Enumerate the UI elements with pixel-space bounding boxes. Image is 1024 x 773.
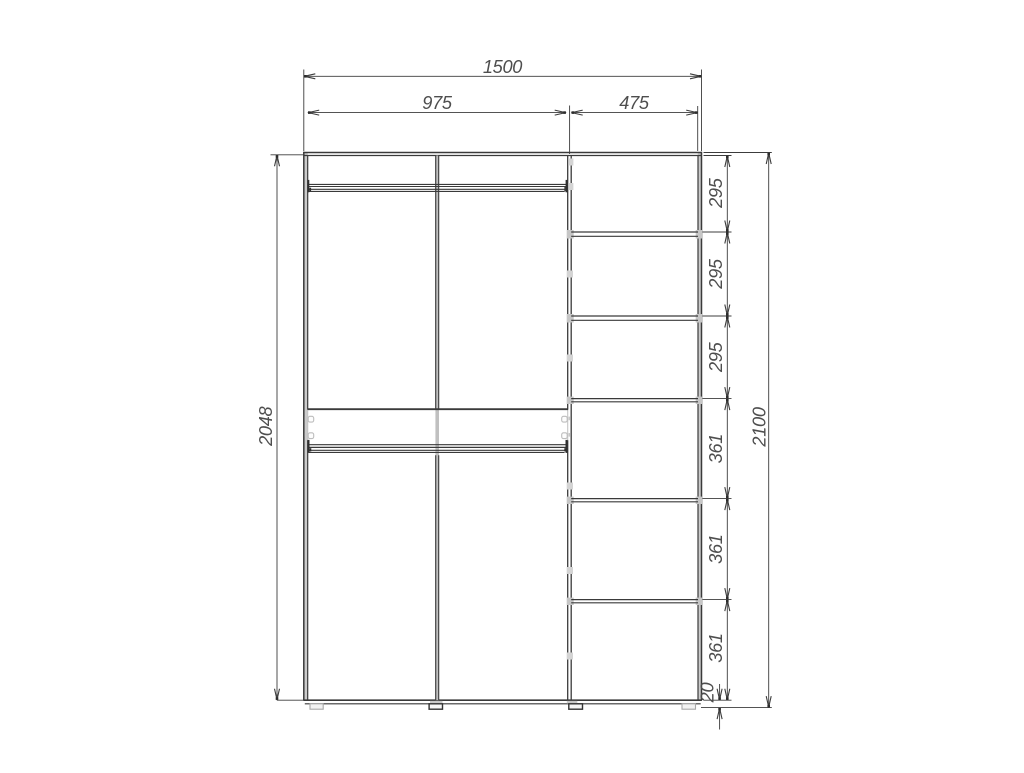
svg-text:975: 975 bbox=[422, 93, 453, 113]
svg-text:295: 295 bbox=[706, 177, 726, 209]
svg-text:20: 20 bbox=[698, 683, 718, 704]
svg-text:361: 361 bbox=[706, 534, 726, 563]
svg-text:475: 475 bbox=[619, 93, 650, 113]
svg-text:295: 295 bbox=[706, 341, 726, 373]
svg-text:2048: 2048 bbox=[256, 405, 276, 446]
svg-text:361: 361 bbox=[706, 633, 726, 662]
svg-text:295: 295 bbox=[706, 258, 726, 290]
svg-text:1500: 1500 bbox=[483, 57, 522, 77]
svg-text:361: 361 bbox=[706, 434, 726, 463]
svg-text:2100: 2100 bbox=[750, 407, 770, 447]
